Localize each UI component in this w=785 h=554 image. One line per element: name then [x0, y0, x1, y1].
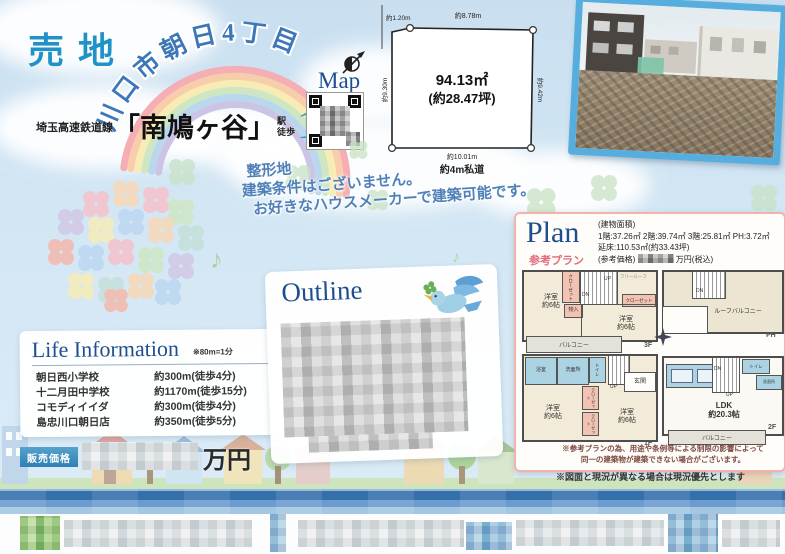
svg-text:♪: ♪	[452, 249, 460, 266]
svg-text:♪: ♪	[210, 244, 223, 274]
floor-areas: 1階:37.26㎡ 2階:39.74㎡ 3階:25.81㎡ PH:3.72㎡	[598, 231, 782, 243]
balcony-3f: バルコニー	[526, 336, 622, 353]
toilet-2f: トイレ	[742, 359, 770, 374]
blur-block	[516, 520, 664, 546]
blur-block	[20, 516, 60, 550]
room-1f-west1: 洋室約6帖	[526, 390, 580, 436]
blur-block	[298, 520, 464, 547]
plan-panel: Plan 参考プラン (建物面積) 1階:37.26㎡ 2階:39.74㎡ 3階…	[514, 212, 785, 472]
floor-label-2f: 2F	[768, 424, 776, 431]
life-information-panel: Life Information ※80m=1分 朝日西小学校 約300m(徒歩…	[20, 329, 289, 437]
price-label-badge: 販売価格	[20, 447, 78, 467]
plan-disclaimer: ※参考プランの為、用途や条例等による制限の影響によって 同一の建築物が建築できな…	[550, 444, 776, 465]
outline-panel: Outline	[265, 264, 504, 464]
plan-subtitle: 参考プラン	[529, 252, 584, 268]
floorplan-ph: DN ルーフバルコニー	[662, 270, 784, 334]
washroom-2f: 洗面所	[756, 375, 782, 390]
closet: クローゼット	[582, 386, 599, 410]
life-information-title: Life Information	[32, 336, 179, 363]
roof-balcony: ルーフバルコニー	[698, 302, 778, 322]
blur-block	[466, 522, 512, 550]
floorplan-3f: DN UP クローゼット フリールーフ クローゼット 物入 洋室約6帖 洋室約6…	[522, 270, 658, 342]
blue-banner	[0, 489, 785, 514]
outline-blurred-text	[281, 317, 469, 437]
closet: クローゼット	[582, 412, 599, 436]
floor-label-3f: 3F	[644, 342, 652, 349]
plan-title: Plan	[526, 216, 579, 250]
room-3f-west1: 洋室約6帖	[526, 284, 576, 320]
blur-block	[722, 520, 780, 547]
life-information-list: 朝日西小学校 約300m(徒歩4分) 十二月田中学校 約1170m(徒歩15分)…	[36, 369, 275, 431]
toilet: トイレ	[589, 357, 606, 383]
plan-compass-icon	[654, 328, 672, 346]
bathroom: 浴室	[525, 357, 557, 385]
room-1f-west2: 洋室約6帖	[600, 398, 654, 436]
price-blur	[638, 254, 674, 263]
blur-block	[64, 520, 252, 547]
washroom: 洗面所	[557, 357, 589, 385]
entrance: 玄関	[624, 372, 656, 392]
free-roof-label: フリールーフ	[620, 274, 647, 280]
life-item: 島忠川口朝日店 約350m(徒歩5分)	[36, 414, 274, 431]
ldk-room: LDK約20.3帖	[692, 394, 756, 426]
reference-price-line: (参考価格) 万円(税込)	[598, 254, 782, 266]
life-item: 十二月田中学校 約1170m(徒歩15分)	[36, 384, 274, 401]
price-blurred-value	[82, 442, 198, 470]
floor-label-ph: PH	[766, 332, 776, 339]
life-information-note: ※80m=1分	[193, 346, 233, 361]
outline-blurred-text	[308, 432, 432, 452]
outline-title: Outline	[281, 275, 363, 309]
building-area-label: (建物面積)	[598, 219, 782, 231]
blur-block	[668, 514, 718, 552]
price-unit: 万円	[203, 440, 251, 475]
site-condition-footnote: ※図面と現況が異なる場合は現況優先とします	[556, 470, 745, 483]
flyer-page: 川口市朝日4丁目 売地 埼玉高速鉄道線 「南鳩ヶ谷」 駅 徒歩 10 分 Map	[0, 0, 785, 554]
floorplan-2f: DN UP トイレ 洗面所 LDK約20.3帖	[662, 356, 784, 436]
balcony-2f: バルコニー	[668, 430, 766, 445]
blur-block	[270, 514, 286, 552]
floorplan-1f: 浴室 洗面所 トイレ UP 玄関 洋室約6帖 クローゼット クローゼット 洋室約…	[522, 354, 658, 442]
company-info-blurred-strip	[0, 514, 785, 554]
total-area: 延床:110.53㎡(約33.43坪)	[598, 242, 782, 254]
room-3f-west2: 洋室約6帖	[600, 310, 652, 338]
plan-spec-block: (建物面積) 1階:37.26㎡ 2階:39.74㎡ 3階:25.81㎡ PH:…	[598, 219, 782, 265]
